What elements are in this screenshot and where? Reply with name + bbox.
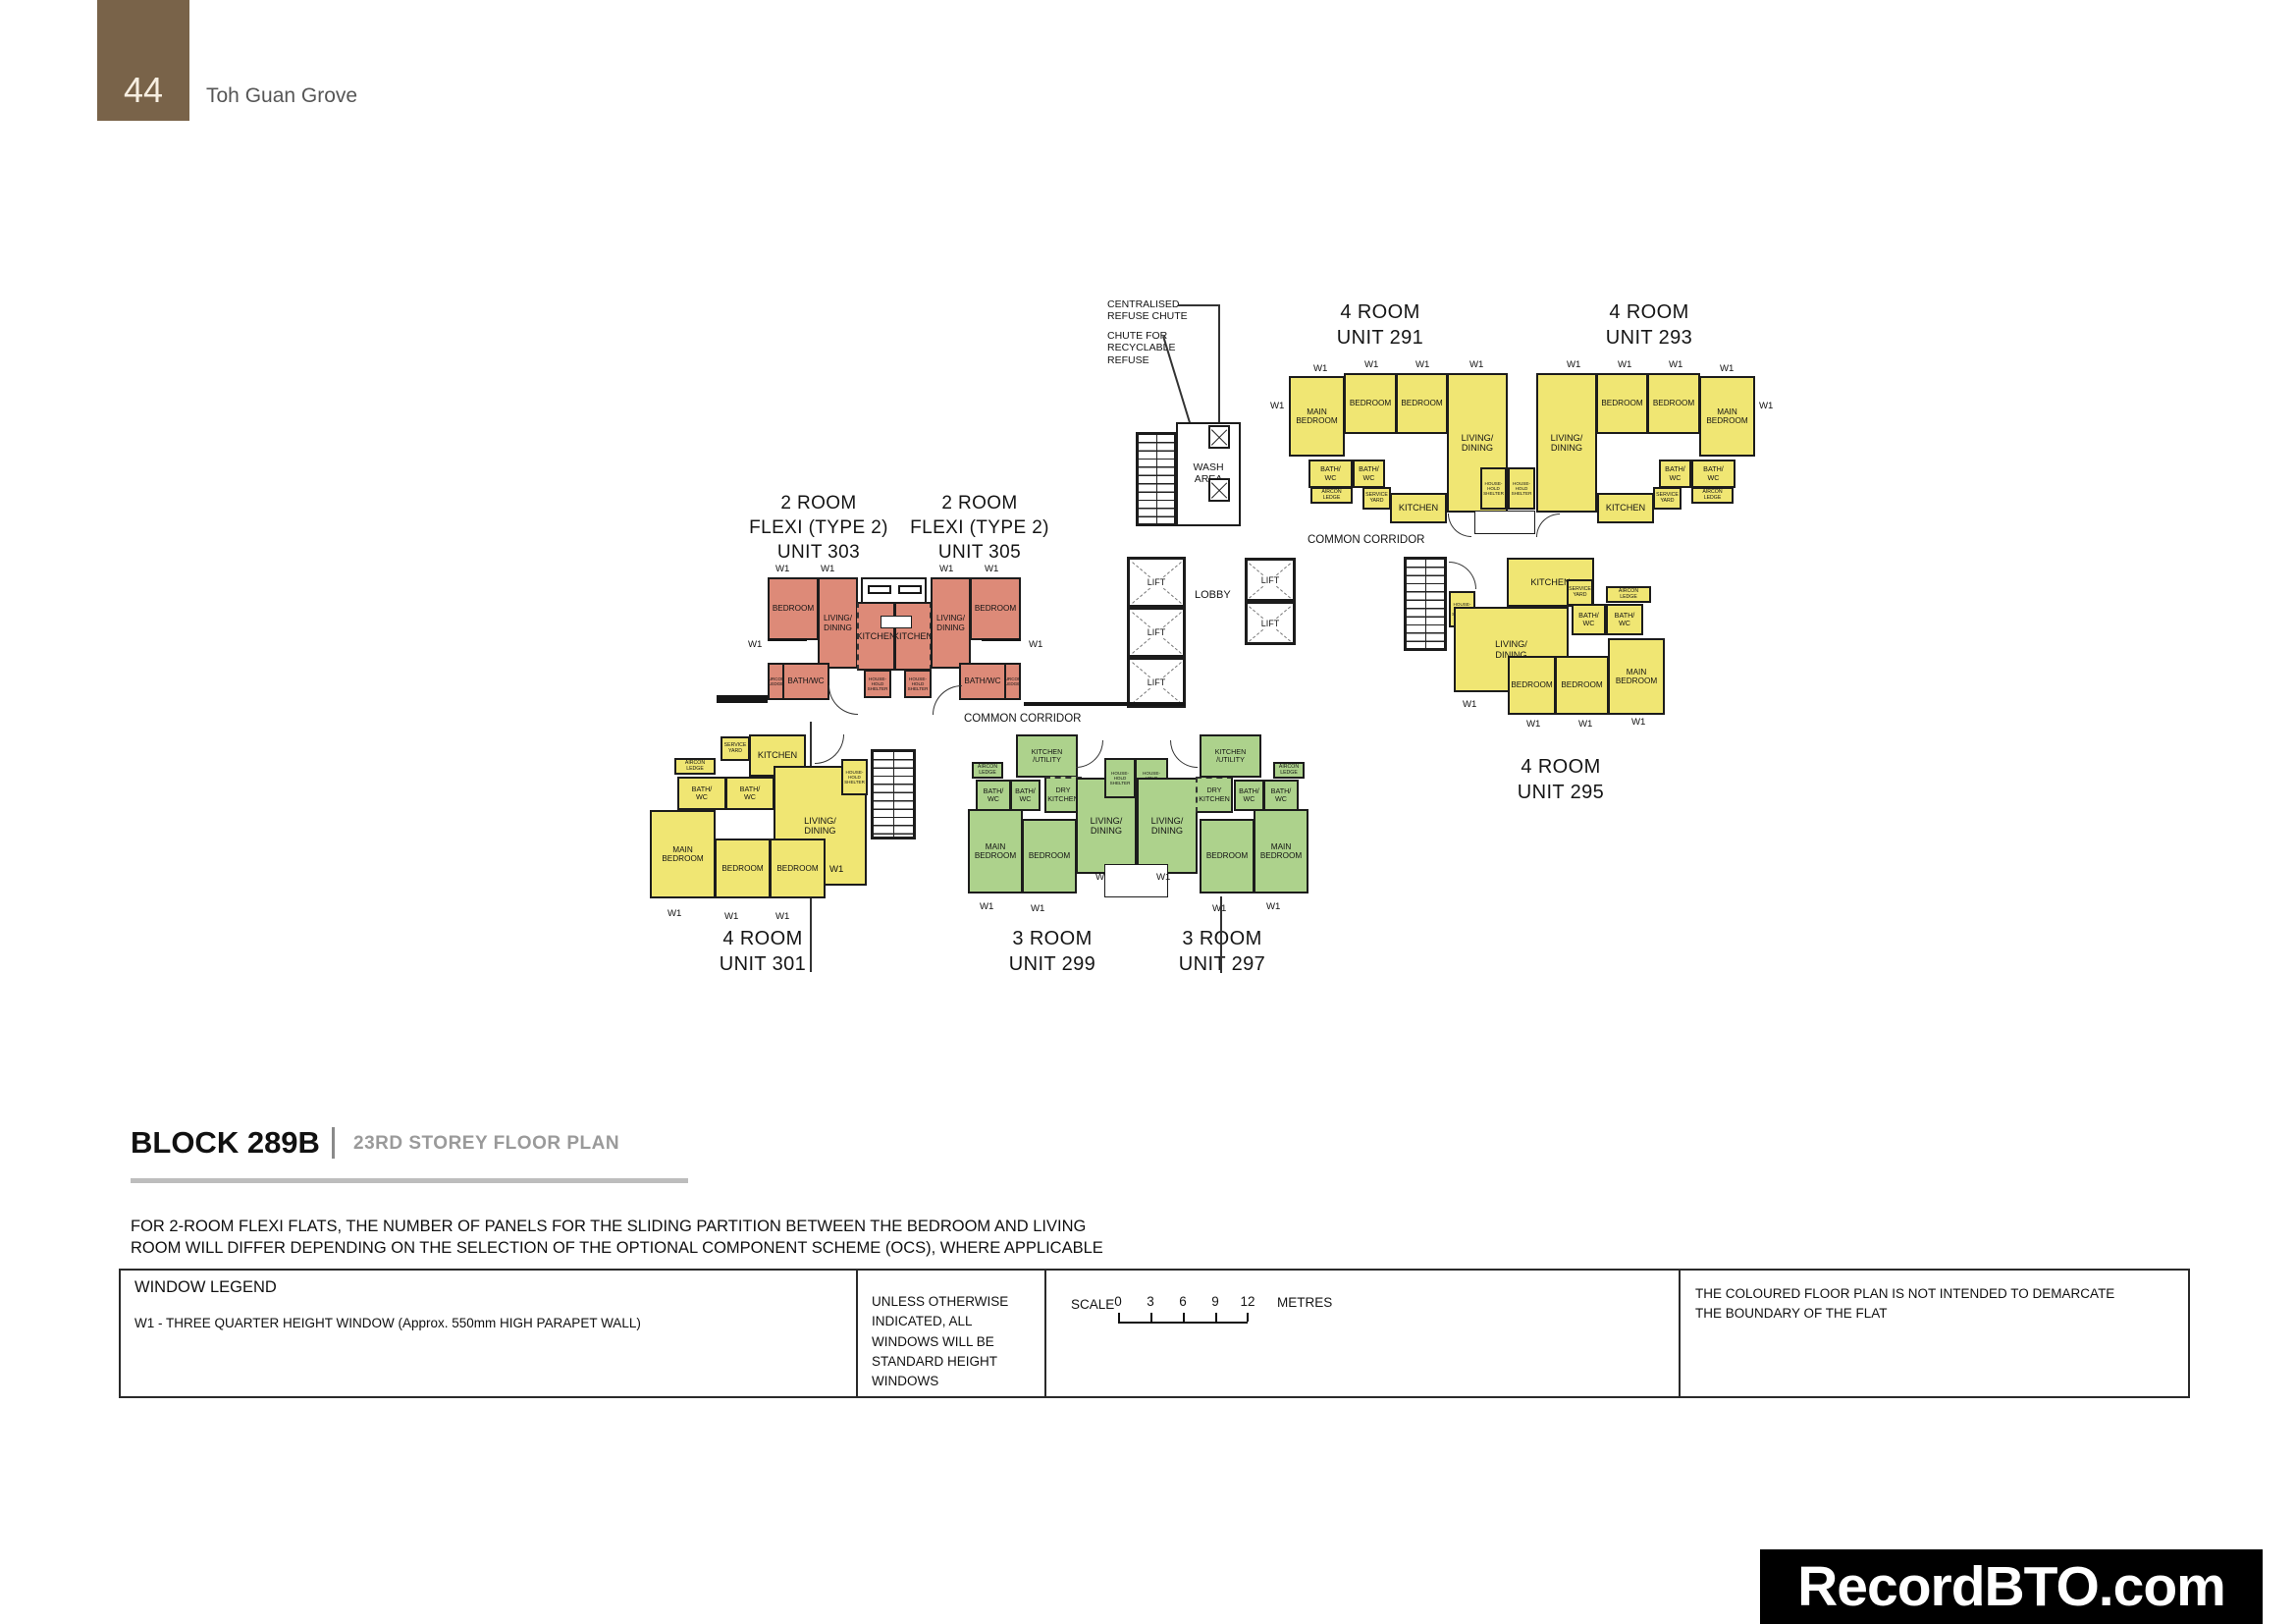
window-sill [868, 585, 891, 594]
u293-main-bedroom: MAIN BEDROOM [1699, 376, 1755, 457]
storey-title: 23RD STOREY FLOOR PLAN [353, 1133, 619, 1155]
u303-kitchen: KITCHEN [857, 602, 895, 671]
unit-301-title: 4 ROOM UNIT 301 [674, 926, 851, 978]
u297-aircon-ledge: AIRCON LEDGE [1273, 762, 1305, 779]
u297-bath-wc: BATH/ WC [1263, 780, 1299, 811]
flexi-note-line1: FOR 2-ROOM FLEXI FLATS, THE NUMBER OF PA… [131, 1216, 1086, 1237]
u293-living-dining: LIVING/ DINING [1536, 373, 1597, 513]
u293-aircon-ledge: AIRCON LEDGE [1691, 487, 1734, 504]
u303-bath-wc: BATH/WC [782, 663, 829, 700]
u291-service-yard: SERVICE YARD [1362, 487, 1391, 510]
u293-household-shelter: HOUSE- HOLD SHELTER [1508, 467, 1535, 510]
page-number: 44 [97, 70, 189, 111]
w1-label: W1 [667, 908, 681, 919]
w1-label: W1 [1526, 719, 1540, 730]
u301-bath-wc: BATH/ WC [725, 777, 774, 810]
door-swing [828, 685, 858, 715]
w1-label: W1 [1313, 363, 1327, 374]
section-line [1220, 896, 1222, 973]
u297-bath-wc: BATH/ WC [1234, 780, 1264, 811]
scale-bar-tick [1247, 1313, 1249, 1322]
chute-leader-line [1178, 304, 1219, 306]
w1-label: W1 [748, 639, 762, 650]
unit-299-title: 3 ROOM UNIT 299 [964, 926, 1141, 978]
w1-label: W1 [821, 564, 834, 574]
block-title: BLOCK 289B [131, 1125, 320, 1161]
lift: LIFT [1127, 657, 1186, 708]
door-swing [1170, 740, 1198, 768]
u303-bedroom: BEDROOM [768, 577, 819, 640]
u295-service-yard: SERVICE YARD [1567, 579, 1593, 606]
u301-bedroom: BEDROOM [770, 839, 826, 898]
w1-label: W1 [1266, 901, 1280, 912]
scale-tick-12: 12 [1240, 1294, 1255, 1309]
u301-household-shelter: HOUSE- HOLD SHELTER [841, 759, 868, 795]
entry-recess [1474, 511, 1535, 534]
u297-bedroom: BEDROOM [1200, 819, 1255, 893]
u297-main-bedroom: MAIN BEDROOM [1254, 809, 1308, 893]
u293-kitchen: KITCHEN [1597, 493, 1654, 523]
u301-main-bedroom: MAIN BEDROOM [650, 810, 716, 898]
u303-aircon-ledge: AIRCON LEDGE [768, 663, 784, 700]
project-name: Toh Guan Grove [206, 84, 357, 108]
scale-tick-0: 0 [1114, 1294, 1122, 1309]
u293-bedroom: BEDROOM [1596, 373, 1648, 434]
scale-unit: METRES [1277, 1295, 1332, 1310]
staircase [1136, 432, 1177, 526]
recyclable-refuse-chute [1208, 478, 1230, 502]
u305-bedroom: BEDROOM [970, 577, 1021, 640]
lift-label: LIFT [1146, 677, 1168, 687]
centralised-refuse-chute [1208, 425, 1230, 449]
u295-bath-wc: BATH/ WC [1606, 604, 1643, 635]
w1-label: W1 [1578, 719, 1592, 730]
staircase [871, 749, 916, 839]
u291-main-bedroom: MAIN BEDROOM [1289, 376, 1345, 457]
common-corridor-label: COMMON CORRIDOR [964, 713, 1081, 727]
u293-service-yard: SERVICE YARD [1653, 487, 1682, 510]
w1-label: W1 [1469, 359, 1483, 370]
unit-305-flexi: FLEXI (TYPE 2) [891, 515, 1068, 540]
u301-bath-wc: BATH/ WC [677, 777, 726, 810]
w1-label: W1 [980, 901, 993, 912]
unit-295-type: 4 ROOM [1472, 754, 1649, 780]
u301-service-yard: SERVICE YARD [721, 736, 750, 761]
corridor-wall [717, 695, 768, 703]
u293-bath-wc: BATH/ WC [1659, 460, 1691, 488]
windows-note: UNLESS OTHERWISE INDICATED, ALL WINDOWS … [872, 1292, 1037, 1391]
unit-297-title: 3 ROOM UNIT 297 [1134, 926, 1310, 978]
w1-label: W1 [1029, 639, 1042, 650]
unit-297-type: 3 ROOM [1134, 926, 1310, 951]
w1-label: W1 [775, 564, 789, 574]
u291-kitchen: KITCHEN [1390, 493, 1447, 523]
u291-bedroom: BEDROOM [1344, 373, 1397, 434]
w1-label: W1 [1031, 903, 1044, 914]
unit-293-type: 4 ROOM [1561, 299, 1737, 325]
flexi-note-line2: ROOM WILL DIFFER DEPENDING ON THE SELECT… [131, 1237, 1103, 1259]
door-swing [933, 685, 962, 715]
unit-293-number: UNIT 293 [1561, 325, 1737, 351]
u291-aircon-ledge: AIRCON LEDGE [1310, 487, 1353, 504]
u301-bedroom: BEDROOM [715, 839, 771, 898]
u291-bedroom: BEDROOM [1396, 373, 1448, 434]
u297-dry-kitchen: DRY KITCHEN [1196, 777, 1233, 813]
boundary-note: THE COLOURED FLOOR PLAN IS NOT INTENDED … [1695, 1284, 2127, 1325]
door-swing [1536, 514, 1560, 537]
u299-household-shelter: HOUSE- HOLD SHELTER [1104, 758, 1136, 798]
title-divider [332, 1127, 335, 1159]
unit-303-title: 2 ROOM FLEXI (TYPE 2) UNIT 303 [730, 491, 907, 565]
door-swing [1448, 514, 1471, 537]
u291-bath-wc: BATH/ WC [1353, 460, 1385, 488]
u293-bath-wc: BATH/ WC [1691, 460, 1735, 488]
w1-label: W1 [1463, 699, 1476, 710]
legend-divider [1044, 1271, 1046, 1396]
u299-kitchen-utility: KITCHEN /UTILITY [1016, 734, 1078, 778]
unit-305-number: UNIT 305 [891, 540, 1068, 565]
u291-bath-wc: BATH/ WC [1308, 460, 1353, 488]
unit-303-type: 2 ROOM [730, 491, 907, 515]
scale-bar-tick [1183, 1313, 1185, 1322]
scale-bar-tick [1150, 1313, 1152, 1322]
u295-aircon-ledge: AIRCON LEDGE [1606, 586, 1651, 603]
w1-label: W1 [1156, 872, 1170, 883]
door-swing [1449, 562, 1476, 589]
chute-leader-line [1218, 304, 1220, 425]
unit-299-type: 3 ROOM [964, 926, 1141, 951]
w1-label: W1 [1720, 363, 1734, 374]
unit-303-number: UNIT 303 [730, 540, 907, 565]
staircase [1404, 557, 1447, 651]
legend-divider [856, 1271, 858, 1396]
watermark: RecordBTO.com [1760, 1549, 2263, 1624]
u299-bedroom: BEDROOM [1022, 819, 1077, 893]
u305-household-shelter: HOUSE- HOLD SHELTER [904, 670, 932, 698]
u305-living-dining: LIVING/ DINING [931, 577, 971, 669]
scale-bar-tick [1118, 1313, 1120, 1322]
unit-291-title: 4 ROOM UNIT 291 [1292, 299, 1468, 352]
lift: LIFT [1245, 601, 1296, 645]
sliding-partition [982, 638, 1021, 641]
scale-label: SCALE [1071, 1295, 1114, 1315]
door-swing [815, 734, 844, 764]
unit-293-title: 4 ROOM UNIT 293 [1561, 299, 1737, 352]
chute-recyclable-label: CHUTE FOR RECYCLABLE REFUSE [1107, 330, 1175, 366]
unit-291-type: 4 ROOM [1292, 299, 1468, 325]
u299-bath-wc: BATH/ WC [1010, 780, 1041, 811]
unit-299-number: UNIT 299 [964, 951, 1141, 977]
w1-definition: W1 - THREE QUARTER HEIGHT WINDOW (Approx… [134, 1314, 641, 1333]
u299-aircon-ledge: AIRCON LEDGE [972, 762, 1003, 779]
lift: LIFT [1245, 558, 1296, 602]
w1-label: W1 [939, 564, 953, 574]
door-swing [1076, 740, 1103, 768]
u303-living-dining: LIVING/ DINING [818, 577, 858, 669]
unit-305-title: 2 ROOM FLEXI (TYPE 2) UNIT 305 [891, 491, 1068, 565]
unit-301-number: UNIT 301 [674, 951, 851, 977]
lift: LIFT [1127, 557, 1186, 608]
floor-plan: CENTRALISED REFUSE CHUTE CHUTE FOR RECYC… [618, 275, 1777, 1001]
u291-household-shelter: HOUSE- HOLD SHELTER [1480, 467, 1507, 510]
u299-main-bedroom: MAIN BEDROOM [968, 809, 1023, 893]
lobby-label: LOBBY [1195, 589, 1231, 602]
service-duct [881, 616, 912, 628]
w1-label: W1 [1415, 359, 1429, 370]
w1-label: W1 [1618, 359, 1631, 370]
window-sill [898, 585, 922, 594]
w1-label: W1 [1364, 359, 1378, 370]
lift-label: LIFT [1259, 575, 1282, 585]
u303-household-shelter: HOUSE- HOLD SHELTER [864, 670, 891, 698]
u295-bath-wc: BATH/ WC [1572, 604, 1606, 635]
u299-bath-wc: BATH/ WC [976, 780, 1011, 811]
w1-label: W1 [1270, 401, 1284, 411]
unit-301-type: 4 ROOM [674, 926, 851, 951]
scale-tick-3: 3 [1147, 1294, 1154, 1309]
scale-bar [1118, 1322, 1248, 1324]
u293-bedroom: BEDROOM [1647, 373, 1700, 434]
w1-label: W1 [775, 911, 789, 922]
w1-label: W1 [724, 911, 738, 922]
centralised-refuse-chute-label: CENTRALISED REFUSE CHUTE [1107, 298, 1188, 323]
w1-label: W1 [829, 864, 843, 875]
w1-label: W1 [1669, 359, 1682, 370]
common-corridor-label: COMMON CORRIDOR [1308, 534, 1424, 548]
u295-main-bedroom: MAIN BEDROOM [1608, 638, 1665, 715]
w1-label: W1 [985, 564, 998, 574]
u295-bedroom: BEDROOM [1508, 656, 1556, 715]
u305-aircon-ledge: AIRCON LEDGE [1004, 663, 1021, 700]
lift-label: LIFT [1259, 619, 1282, 628]
u297-living-dining: LIVING/ DINING [1137, 778, 1198, 874]
u297-kitchen-utility: KITCHEN /UTILITY [1200, 734, 1261, 778]
scale-bar-tick [1215, 1313, 1217, 1322]
lift-label: LIFT [1146, 577, 1168, 587]
unit-291-number: UNIT 291 [1292, 325, 1468, 351]
scale-tick-9: 9 [1211, 1294, 1219, 1309]
unit-303-flexi: FLEXI (TYPE 2) [730, 515, 907, 540]
scale-tick-6: 6 [1179, 1294, 1187, 1309]
unit-305-type: 2 ROOM [891, 491, 1068, 515]
u301-aircon-ledge: AIRCON LEDGE [674, 758, 716, 775]
sliding-partition [768, 638, 807, 641]
lift-label: LIFT [1146, 627, 1168, 637]
u295-bedroom: BEDROOM [1555, 656, 1609, 715]
w1-label: W1 [1567, 359, 1580, 370]
unit-295-title: 4 ROOM UNIT 295 [1472, 754, 1649, 806]
title-underline [131, 1178, 688, 1183]
legend-divider [1679, 1271, 1681, 1396]
u305-bath-wc: BATH/WC [959, 663, 1006, 700]
window-legend-title: WINDOW LEGEND [134, 1278, 277, 1297]
corridor-wall [1024, 702, 1186, 706]
w1-label: W1 [1759, 401, 1773, 411]
w1-label: W1 [1631, 717, 1645, 728]
lift: LIFT [1127, 607, 1186, 658]
unit-295-number: UNIT 295 [1472, 780, 1649, 805]
unit-297-number: UNIT 297 [1134, 951, 1310, 977]
legend-table: WINDOW LEGEND W1 - THREE QUARTER HEIGHT … [119, 1269, 2190, 1398]
page-number-tab: 44 [97, 0, 189, 121]
u305-kitchen: KITCHEN [894, 602, 932, 671]
